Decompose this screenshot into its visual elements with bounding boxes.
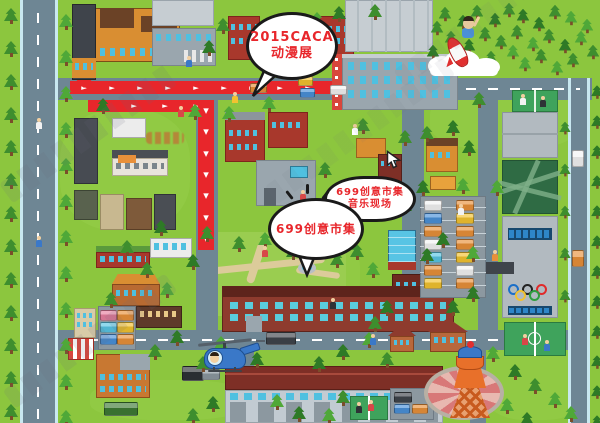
tree-icon [519, 57, 532, 71]
window-row [100, 374, 146, 380]
tree-icon [591, 235, 600, 249]
car-icon [330, 85, 347, 95]
tree-icon [59, 14, 73, 30]
emphasis-mark [306, 184, 309, 194]
roof [120, 354, 150, 370]
route-arrow-icon: ► [193, 84, 199, 91]
tree-icon [543, 29, 556, 43]
tree-icon [591, 175, 600, 189]
car-icon [424, 278, 442, 289]
tree-icon [59, 302, 73, 318]
tree-icon [368, 4, 382, 20]
building [430, 176, 456, 190]
person-icon [186, 56, 192, 67]
tree-icon [202, 40, 216, 56]
awning [118, 155, 136, 163]
tree-icon [200, 226, 214, 242]
tree-icon [549, 5, 562, 19]
bus-icon [266, 332, 296, 345]
tree-icon [486, 346, 500, 362]
person-icon [356, 402, 362, 413]
person-icon [36, 236, 42, 247]
tree-icon [591, 115, 600, 129]
tree-icon [462, 140, 476, 156]
tree-icon [575, 31, 588, 45]
route-arrow-icon: ▼ [203, 150, 209, 157]
tree-icon [292, 406, 306, 422]
tree-icon [368, 316, 382, 332]
callout-anime-expo: 2015CACA 动漫展 [246, 12, 338, 80]
watermark [146, 132, 184, 144]
tree-icon [507, 45, 520, 59]
tree-icon [591, 205, 600, 219]
route-arrow-icon: ► [277, 84, 283, 91]
tree-icon [59, 266, 73, 282]
person-icon [370, 334, 376, 345]
tree-icon [206, 396, 220, 412]
tree-icon [446, 300, 460, 316]
person-icon [330, 298, 336, 309]
helicopter-icon [198, 336, 264, 376]
tree-icon [4, 41, 18, 57]
tree-icon [140, 262, 154, 278]
route-arrow-icon: ► [109, 84, 115, 91]
tree-icon [564, 406, 578, 422]
tree-icon [466, 246, 480, 262]
window-row [430, 152, 454, 158]
person-icon [492, 250, 498, 261]
person-icon [368, 400, 374, 411]
tree-icon [517, 9, 530, 23]
tree-icon [186, 408, 200, 423]
tree-icon [591, 265, 600, 279]
tree-icon [154, 220, 168, 236]
car-icon [456, 265, 474, 276]
route-arrow-icon: ► [221, 84, 227, 91]
tree-icon [186, 254, 200, 270]
tree-icon [120, 240, 134, 256]
tree-icon [591, 85, 600, 99]
tree-icon [366, 262, 380, 278]
tree-icon [270, 394, 284, 410]
park-map-canvas[interactable]: ►►►►►►►►►►►►►►▼▼▼▼▼▼▼ [0, 0, 600, 423]
tree-icon [591, 355, 600, 369]
window-row [77, 313, 93, 318]
route-arrow-icon: ▼ [203, 214, 209, 221]
building [100, 194, 124, 230]
tree-icon [4, 272, 18, 288]
olympic-rings-icon [508, 284, 560, 304]
tree-icon [312, 356, 326, 372]
building [502, 112, 558, 158]
tree-icon [336, 344, 350, 360]
window-row [230, 314, 446, 321]
tree-icon [528, 378, 542, 394]
window-row [272, 122, 304, 128]
tree-icon [559, 39, 572, 53]
tree-icon [436, 232, 450, 248]
building [126, 198, 152, 230]
road-centerline [37, 4, 39, 419]
callout-market: 699创意市集 [268, 198, 364, 260]
tree-icon [4, 140, 18, 156]
tree-icon [520, 412, 534, 423]
roof-seams [345, 0, 433, 52]
tree-icon [59, 410, 73, 423]
tree-icon [559, 206, 570, 219]
tree-icon [416, 180, 430, 196]
tree-icon [4, 206, 18, 222]
tree-icon [456, 178, 470, 194]
car-icon [412, 404, 428, 414]
tree-icon [4, 338, 18, 354]
tree-icon [420, 126, 434, 142]
car-icon [394, 404, 410, 414]
tree-icon [4, 305, 18, 321]
person-icon [262, 246, 268, 257]
car-icon [394, 392, 412, 403]
route-arrow-icon: ▼ [203, 171, 209, 178]
roof [100, 8, 134, 28]
building [74, 190, 98, 220]
tree-icon [466, 286, 480, 302]
tree-icon [59, 86, 73, 102]
tree-icon [59, 194, 73, 210]
door [246, 316, 262, 332]
tree-icon [587, 45, 600, 59]
tree-icon [511, 25, 524, 39]
tree-icon [559, 164, 570, 177]
tree-icon [446, 120, 460, 136]
tree-icon [380, 300, 394, 316]
tree-icon [170, 330, 184, 346]
building [388, 262, 416, 270]
tree-icon [4, 239, 18, 255]
car-icon [572, 250, 584, 267]
road-centerline [70, 339, 558, 341]
person-icon [178, 106, 184, 117]
car-icon [456, 226, 474, 237]
tree-icon [565, 11, 578, 25]
ladder [335, 58, 338, 106]
tree-icon [148, 344, 162, 360]
court-circle [528, 332, 541, 345]
tree-icon [332, 6, 346, 22]
tree-icon [4, 8, 18, 24]
tree-icon [188, 104, 202, 120]
person-icon [540, 96, 546, 107]
tree-icon [4, 107, 18, 123]
bus-icon [104, 402, 138, 416]
tree-icon [222, 106, 236, 122]
tree-icon [490, 180, 504, 196]
tree-icon [559, 122, 570, 135]
route-arrow-icon: ▼ [203, 107, 209, 114]
window-row [154, 243, 188, 250]
window-row [229, 144, 261, 150]
tree-icon [591, 145, 600, 159]
building [534, 90, 536, 112]
cursor-icon [386, 150, 402, 169]
tree-icon [567, 53, 580, 67]
tree-icon [535, 49, 548, 63]
tree-icon [420, 248, 434, 264]
tree-icon [508, 364, 522, 380]
person-icon [232, 92, 238, 103]
tree-icon [232, 236, 246, 252]
car-icon [424, 213, 442, 224]
tree-icon [591, 415, 600, 423]
tree-icon [59, 374, 73, 390]
window-row [116, 163, 164, 169]
route-arrow-icon: ▼ [203, 129, 209, 136]
person-icon [520, 94, 526, 105]
window-row [509, 308, 551, 313]
person-icon [36, 118, 42, 129]
window-row [394, 340, 410, 345]
car-icon [424, 200, 442, 211]
person-icon [458, 204, 464, 215]
car-icon [424, 265, 442, 276]
window-row [509, 230, 551, 238]
tree-icon [591, 385, 600, 399]
building [502, 133, 558, 135]
person-icon [522, 334, 528, 345]
tree-icon [472, 92, 486, 108]
tree-icon [548, 392, 562, 408]
tree-icon [380, 352, 394, 368]
tree-icon [4, 74, 18, 90]
tree-icon [559, 290, 570, 303]
tree-icon [59, 230, 73, 246]
tree-icon [216, 18, 230, 34]
shed [484, 262, 514, 274]
tree-icon [322, 408, 336, 423]
window-row [100, 386, 146, 392]
route-arrow-icon: ► [163, 102, 169, 109]
person-icon [544, 340, 550, 351]
tree-icon [336, 390, 350, 406]
window-row [229, 130, 261, 136]
building [268, 112, 308, 148]
car-icon [572, 150, 584, 167]
tree-icon [559, 248, 570, 261]
tree-icon [551, 61, 564, 75]
car-icon [117, 334, 134, 345]
window-row [75, 63, 93, 70]
tree-icon [59, 50, 73, 66]
tree-icon [591, 295, 600, 309]
building [152, 0, 214, 26]
tree-icon [591, 325, 600, 339]
route-arrow-icon: ▼ [203, 193, 209, 200]
window-row [230, 302, 446, 309]
tree-icon [104, 292, 118, 308]
window-row [434, 337, 462, 343]
tree-icon [398, 130, 412, 146]
car-icon [300, 88, 315, 98]
